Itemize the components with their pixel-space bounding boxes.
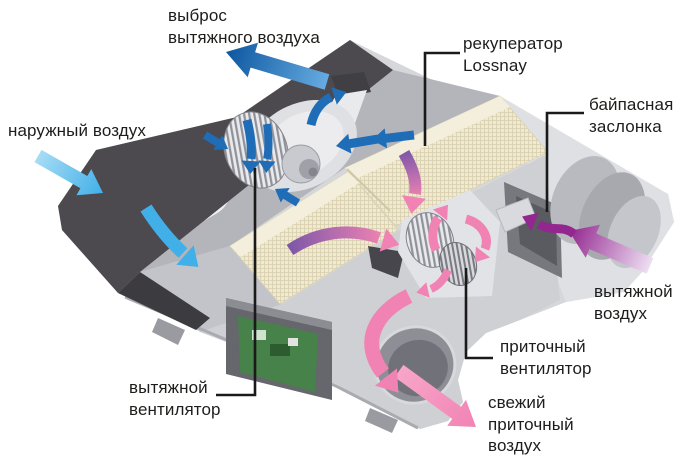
label-recuperator: рекуператор Lossnay [463,33,563,76]
label-supply-fan: приточный вентилятор [500,336,592,379]
label-extract-air: вытяжной воздух [594,281,673,324]
label-outdoor-air: наружный воздух [8,120,146,142]
label-fresh-supply-air: свежий приточный воздух [488,392,574,457]
lossnay-cutaway-diagram: выброс вытяжного воздуха рекуператор Los… [0,0,685,471]
label-bypass-damper: байпасная заслонка [589,94,673,137]
label-exhaust-fan: вытяжной вентилятор [129,377,221,420]
label-exhaust-discharge: выброс вытяжного воздуха [168,5,320,48]
lossnay-unit-illustration [0,0,685,471]
